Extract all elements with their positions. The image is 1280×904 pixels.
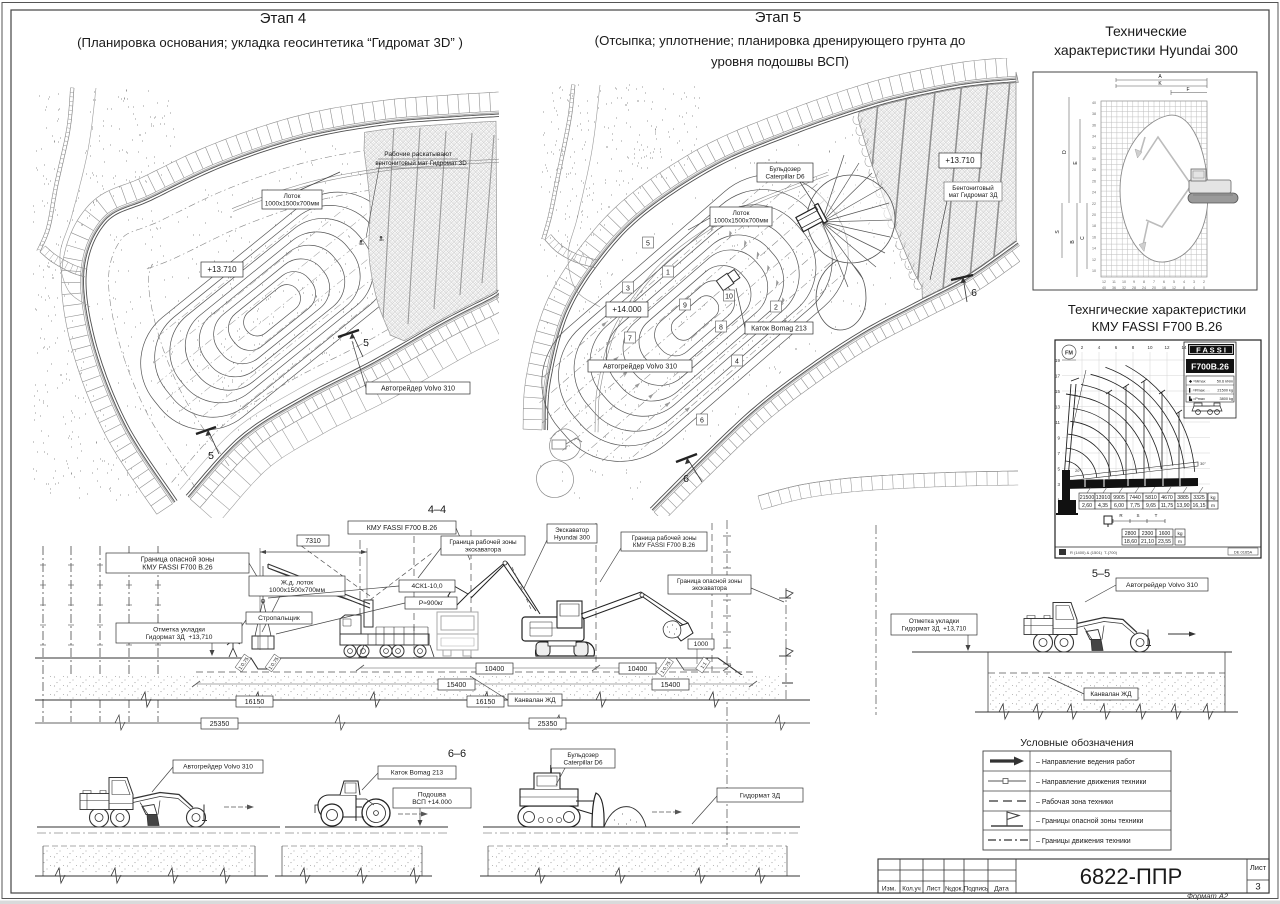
svg-text:9: 9 <box>683 303 687 310</box>
svg-text:Лоток: Лоток <box>284 193 301 200</box>
svg-text:F700B.26: F700B.26 <box>1191 362 1229 372</box>
svg-text:kg: kg <box>1177 531 1182 537</box>
svg-text:Автогрейдер Volvo 310: Автогрейдер Volvo 310 <box>183 763 253 771</box>
svg-text:16150: 16150 <box>476 699 496 706</box>
svg-text:40: 40 <box>1102 286 1106 290</box>
svg-text:вентонитовый мат Гидромат 3D: вентонитовый мат Гидромат 3D <box>375 160 467 167</box>
svg-text:Автогрейдер Volvo 310: Автогрейдер Volvo 310 <box>1126 581 1198 589</box>
svg-text:3885: 3885 <box>1177 495 1189 501</box>
svg-text:16: 16 <box>1092 235 1096 239</box>
svg-text:4: 4 <box>735 359 739 366</box>
svg-text:Подошва: Подошва <box>418 792 446 799</box>
svg-text:25350: 25350 <box>538 721 558 728</box>
svg-text:12: 12 <box>1092 258 1096 262</box>
svg-text:9: 9 <box>1133 280 1135 284</box>
svg-text:Рабочие раскатывают: Рабочие раскатывают <box>384 150 452 158</box>
svg-text:40: 40 <box>1092 101 1096 105</box>
svg-text:Гидормат 3Д +13,710: Гидормат 3Д +13,710 <box>146 634 213 641</box>
svg-text:16: 16 <box>1162 286 1166 290</box>
svg-text:9,65: 9,65 <box>1146 503 1156 509</box>
svg-text:6: 6 <box>1163 280 1165 284</box>
svg-text:10: 10 <box>1122 280 1126 284</box>
svg-text:8: 8 <box>719 325 723 332</box>
svg-text:10: 10 <box>1147 345 1153 350</box>
svg-text:32: 32 <box>1122 286 1126 290</box>
svg-text:5: 5 <box>208 450 214 462</box>
svg-text:15: 15 <box>1055 389 1061 394</box>
svg-text:5–5: 5–5 <box>1092 568 1110 580</box>
svg-text:13,90: 13,90 <box>1177 503 1190 509</box>
svg-text:DE 0165A: DE 0165A <box>1234 550 1253 555</box>
svg-text:– Направление ведения работ: – Направление ведения работ <box>1036 758 1136 766</box>
svg-text:Отметка укладки: Отметка укладки <box>153 627 205 634</box>
svg-text:Условные обозначения: Условные обозначения <box>1020 737 1133 749</box>
svg-text:10400: 10400 <box>628 666 648 673</box>
svg-text:Подпись: Подпись <box>964 886 989 893</box>
svg-text:19: 19 <box>1055 358 1061 363</box>
svg-text:14: 14 <box>1092 247 1096 251</box>
svg-text:экскаватора: экскаватора <box>692 585 727 592</box>
svg-text:36: 36 <box>1092 123 1096 127</box>
svg-text:1000: 1000 <box>694 641 709 648</box>
svg-text:Лист: Лист <box>926 886 940 893</box>
svg-text:3: 3 <box>1193 280 1195 284</box>
svg-text:КМУ FASSI F700 B.26: КМУ FASSI F700 B.26 <box>1092 319 1223 334</box>
svg-text:Технгические характеристики: Технгические характеристики <box>1068 302 1246 317</box>
svg-text:– Границы движения техники: – Границы движения техники <box>1036 838 1131 845</box>
svg-text:6: 6 <box>700 418 704 425</box>
svg-text:+13.710: +13.710 <box>945 156 975 165</box>
svg-text:3800 kg: 3800 kg <box>1219 397 1233 401</box>
svg-text:16150: 16150 <box>245 699 265 706</box>
svg-text:1000х1500х700мм: 1000х1500х700мм <box>265 200 319 207</box>
svg-text:5: 5 <box>1173 280 1175 284</box>
svg-text:Hyundai 300: Hyundai 300 <box>554 534 590 541</box>
svg-text:7: 7 <box>628 336 632 343</box>
svg-text:F A S S I: F A S S I <box>1196 346 1226 355</box>
svg-text:4: 4 <box>1193 286 1195 290</box>
svg-text:10400: 10400 <box>485 666 505 673</box>
svg-text:18: 18 <box>1092 224 1096 228</box>
svg-text:7310: 7310 <box>305 538 321 545</box>
svg-text:Этап 5: Этап 5 <box>755 9 801 26</box>
svg-text:23,55: 23,55 <box>1158 539 1171 545</box>
svg-text:10: 10 <box>725 294 733 301</box>
svg-text:2,60: 2,60 <box>1082 503 1092 509</box>
svg-text:Лоток: Лоток <box>733 210 750 217</box>
svg-text:11: 11 <box>1055 420 1060 425</box>
svg-text:16,15: 16,15 <box>1193 503 1206 509</box>
svg-text:ВСП +14.000: ВСП +14.000 <box>412 799 452 806</box>
svg-text:F: F <box>1186 87 1189 93</box>
svg-text:7,75: 7,75 <box>1130 503 1140 509</box>
svg-text:12: 12 <box>1172 286 1176 290</box>
svg-text:Отметка укладки: Отметка укладки <box>909 618 960 625</box>
svg-text:9905: 9905 <box>1113 495 1125 501</box>
svg-text:+14.000: +14.000 <box>612 305 642 314</box>
svg-text:№док.: №док. <box>945 886 963 893</box>
svg-text:Гидормат 3Д +13,710: Гидормат 3Д +13,710 <box>902 625 967 632</box>
svg-text:21,10: 21,10 <box>1141 539 1154 545</box>
svg-text:(Отсыпка; уплотнение; планиров: (Отсыпка; уплотнение; планировка дрениру… <box>595 33 966 48</box>
svg-text:мат Гидромат 3Д: мат Гидромат 3Д <box>949 192 999 199</box>
svg-text:5: 5 <box>646 241 650 248</box>
svg-text:Дата: Дата <box>994 886 1009 893</box>
svg-text:– Границы опасной зоны техники: – Границы опасной зоны техники <box>1036 817 1144 825</box>
svg-text:m: m <box>1211 504 1215 509</box>
svg-text:25350: 25350 <box>210 721 230 728</box>
svg-text:Бульдозер: Бульдозер <box>769 166 801 173</box>
svg-text:FM: FM <box>1065 351 1073 357</box>
svg-text:Граница опасной зоны: Граница опасной зоны <box>677 578 742 585</box>
svg-text:1600: 1600 <box>1159 531 1171 537</box>
svg-text:Граница рабочей зоны: Граница рабочей зоны <box>449 538 517 546</box>
svg-text:Caterpillar D6: Caterpillar D6 <box>765 173 805 180</box>
svg-text:5: 5 <box>363 337 369 349</box>
svg-text:D: D <box>1062 150 1068 154</box>
svg-text:kg: kg <box>1210 495 1215 501</box>
svg-text:Стропальщик: Стропальщик <box>258 615 300 622</box>
svg-text:Бентонитовый: Бентонитовый <box>952 185 994 192</box>
svg-text:Граница опасной зоны: Граница опасной зоны <box>141 555 214 563</box>
svg-text:Каток Bomag 213: Каток Bomag 213 <box>391 770 444 777</box>
svg-text:1000х1500х700мм: 1000х1500х700мм <box>269 587 325 594</box>
svg-text:Изм.: Изм. <box>882 886 896 893</box>
svg-text:21500: 21500 <box>1080 495 1095 501</box>
svg-text:36: 36 <box>1112 286 1116 290</box>
svg-text:11: 11 <box>1112 280 1116 284</box>
svg-text:C: C <box>1080 236 1086 240</box>
svg-text:Автогрейдер Volvo 310: Автогрейдер Volvo 310 <box>603 362 677 370</box>
svg-text:Р≈900кг: Р≈900кг <box>419 600 444 607</box>
svg-text:Каток Bomag 213: Каток Bomag 213 <box>751 325 807 332</box>
svg-text:6,00: 6,00 <box>1114 503 1124 509</box>
svg-text:КМУ FASSI F700 B.26: КМУ FASSI F700 B.26 <box>367 525 437 532</box>
svg-text:Канвалан ЖД: Канвалан ЖД <box>1090 691 1132 698</box>
svg-text:3: 3 <box>626 286 630 293</box>
svg-text:3: 3 <box>1255 882 1260 893</box>
svg-text:50.6 kNm: 50.6 kNm <box>1217 380 1233 384</box>
svg-text:Этап 4: Этап 4 <box>260 10 306 27</box>
svg-text:◆ =Mmax: ◆ =Mmax <box>1189 380 1206 384</box>
svg-text:8: 8 <box>1183 286 1185 290</box>
svg-text:уровня подошвы ВСП): уровня подошвы ВСП) <box>711 54 849 69</box>
svg-text:6822-ППР: 6822-ППР <box>1080 864 1183 889</box>
svg-text:КМУ FASSI F700 B.26: КМУ FASSI F700 B.26 <box>142 564 212 571</box>
svg-text:28: 28 <box>1092 168 1096 172</box>
svg-text:10: 10 <box>1092 269 1096 273</box>
svg-text:22: 22 <box>1092 202 1096 206</box>
svg-text:S: S <box>1136 513 1139 518</box>
svg-text:20°: 20° <box>1075 469 1081 473</box>
svg-text:2: 2 <box>774 305 778 312</box>
svg-text:4670: 4670 <box>1161 495 1173 501</box>
svg-text:17: 17 <box>1055 374 1061 379</box>
svg-text:– Рабочая зона техники: – Рабочая зона техники <box>1036 798 1113 806</box>
svg-text:8: 8 <box>1143 280 1145 284</box>
svg-text:12: 12 <box>1164 345 1170 350</box>
svg-text:4СК1-10,0: 4СК1-10,0 <box>412 583 443 590</box>
svg-text:1000х1500х700мм: 1000х1500х700мм <box>714 217 768 224</box>
svg-text:характеристики Hyundai 300: характеристики Hyundai 300 <box>1054 42 1238 58</box>
svg-text:T: T <box>1155 513 1158 518</box>
svg-text:Бульдозер: Бульдозер <box>567 752 599 759</box>
svg-text:15400: 15400 <box>447 682 467 689</box>
svg-text:Канвалан ЖД: Канвалан ЖД <box>514 697 556 704</box>
svg-text:2800: 2800 <box>1125 531 1137 537</box>
svg-text:2: 2 <box>1203 280 1205 284</box>
svg-text:38: 38 <box>1092 112 1096 116</box>
svg-text:4,35: 4,35 <box>1098 503 1108 509</box>
svg-text:Кол.уч: Кол.уч <box>902 886 921 893</box>
svg-text:20: 20 <box>1152 286 1156 290</box>
svg-text:(Планировка основания; укладка: (Планировка основания; укладка геосинтет… <box>77 35 463 50</box>
svg-text:30: 30 <box>1092 157 1096 161</box>
svg-text:7440: 7440 <box>1129 495 1141 501</box>
svg-text:30°: 30° <box>1200 462 1206 466</box>
svg-text:+13.710: +13.710 <box>207 265 237 274</box>
svg-text:Технические: Технические <box>1105 23 1187 39</box>
svg-text:20: 20 <box>1092 213 1096 217</box>
svg-text:2300: 2300 <box>1142 531 1154 537</box>
svg-text:3325: 3325 <box>1193 495 1205 501</box>
svg-text:5810: 5810 <box>1145 495 1157 501</box>
svg-text:13910: 13910 <box>1096 495 1111 501</box>
svg-text:12: 12 <box>1102 280 1106 284</box>
svg-text:6: 6 <box>683 473 689 485</box>
svg-text:32: 32 <box>1092 146 1096 150</box>
svg-text:4–4: 4–4 <box>428 504 446 516</box>
svg-text:Ж.д. лоток: Ж.д. лоток <box>281 580 313 587</box>
svg-text:28: 28 <box>1132 286 1136 290</box>
svg-text:Гидормат 3Д: Гидормат 3Д <box>740 792 781 799</box>
svg-text:1: 1 <box>666 270 670 277</box>
svg-text:6–6: 6–6 <box>448 748 466 760</box>
svg-text:m: m <box>1178 540 1182 545</box>
svg-text:Экскаватор: Экскаватор <box>555 527 589 534</box>
svg-text:24: 24 <box>1142 286 1146 290</box>
svg-text:Граница рабочей зоны: Граница рабочей зоны <box>631 535 697 542</box>
svg-text:34: 34 <box>1092 135 1096 139</box>
svg-text:Лист: Лист <box>1250 863 1267 872</box>
svg-text:6: 6 <box>971 287 977 299</box>
svg-text:КМУ FASSI F700 B.26: КМУ FASSI F700 B.26 <box>633 542 696 549</box>
svg-text:24: 24 <box>1092 191 1096 195</box>
svg-text:4: 4 <box>1183 280 1185 284</box>
svg-text:– Направление движения техники: – Направление движения техники <box>1036 779 1147 786</box>
svg-text:15400: 15400 <box>661 682 681 689</box>
svg-text:13: 13 <box>1055 405 1061 410</box>
svg-text:R (1400) & (1501) T-(700): R (1400) & (1501) T-(700) <box>1070 550 1118 555</box>
svg-text:Caterpillar D6: Caterpillar D6 <box>563 759 603 766</box>
svg-text:0: 0 <box>1203 286 1205 290</box>
svg-text:11,75: 11,75 <box>1161 503 1174 509</box>
svg-text:21500 kg: 21500 kg <box>1217 389 1233 393</box>
svg-text:26: 26 <box>1092 179 1096 183</box>
svg-text:7: 7 <box>1153 280 1155 284</box>
svg-text:Формат А2: Формат А2 <box>1187 892 1229 901</box>
svg-text:экскаватора: экскаватора <box>465 546 502 553</box>
svg-text:Автогрейдер Volvo 310: Автогрейдер Volvo 310 <box>381 384 455 392</box>
svg-text:▙ =Pmax: ▙ =Pmax <box>1188 396 1205 401</box>
svg-text:18,60: 18,60 <box>1124 539 1137 545</box>
